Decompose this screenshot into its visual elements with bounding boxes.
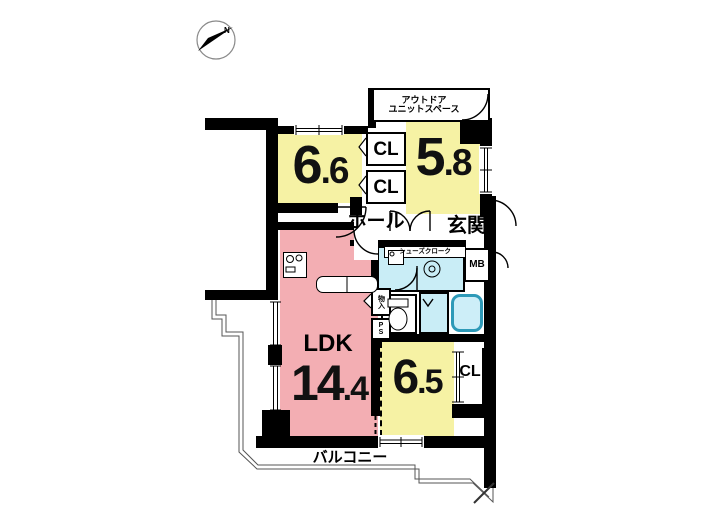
shoes-closet-label: シューズクローク <box>384 246 466 258</box>
storage-label: 物入 <box>373 290 389 314</box>
ldk-label: LDK <box>292 332 364 356</box>
outdoor-unit-label: アウトドア ユニットスペース <box>374 91 474 119</box>
closet-b-label: CL <box>366 172 406 202</box>
pipe-space-label: PS <box>373 320 389 338</box>
wall-closet-c-block <box>452 404 490 418</box>
floor-plan: N <box>0 0 705 525</box>
wall-bottom <box>256 436 492 448</box>
bathtub <box>451 294 483 332</box>
compass-icon: N <box>197 21 235 59</box>
entrance-label: 玄関 <box>442 214 492 238</box>
kitchen-stove <box>283 252 307 278</box>
hall-label: ホール <box>340 210 412 232</box>
closet-a-label: CL <box>366 134 406 164</box>
outdoor-unit-line2: ユニットスペース <box>389 105 460 114</box>
svg-text:N: N <box>224 26 230 35</box>
window-bedroom-b-right <box>479 146 493 194</box>
bedroom-c-size: 6.5 <box>380 350 454 426</box>
door-arc-double-right <box>410 211 430 231</box>
bedroom-b-size: 5.8 <box>406 126 480 206</box>
bathroom-fill <box>419 292 449 334</box>
kitchen-counter <box>316 276 378 293</box>
wall-left-stub-lower <box>205 290 271 300</box>
wall-bedroom-a-bottom <box>266 203 338 213</box>
closet-c-label: CL <box>456 362 484 382</box>
wall-top-left-stub <box>205 118 271 130</box>
bedroom-a-size: 6.6 <box>278 134 362 203</box>
balcony-label: バルコニー <box>300 449 400 465</box>
window-bedroom-c-bottom <box>378 435 424 448</box>
wall-wet-bottom <box>377 334 487 342</box>
meter-box-label: MB <box>464 248 490 282</box>
ldk-size: 14.4 <box>280 354 378 408</box>
ldk-door-corner <box>354 230 378 260</box>
